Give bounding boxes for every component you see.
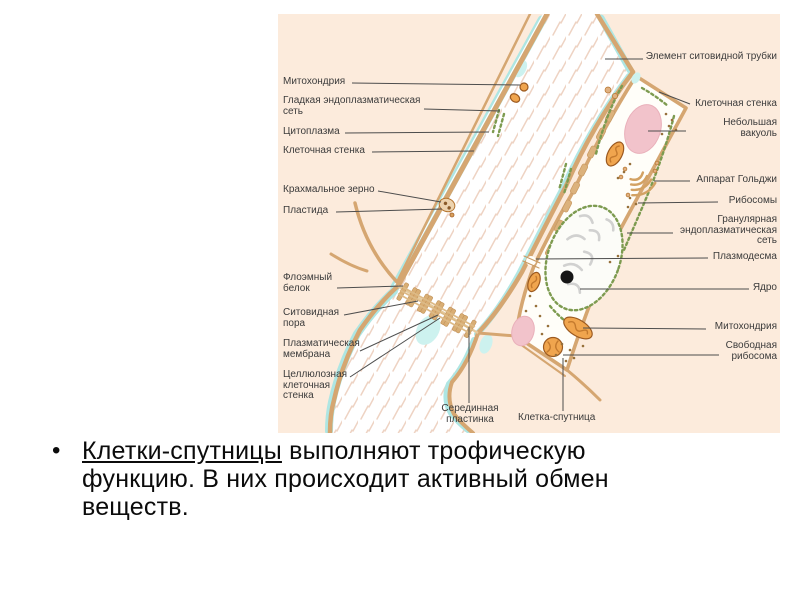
label-sieve-pore: Ситовидная пора [283,308,339,329]
label-phloem-protein: Флоэмный белок [283,273,332,294]
label-small-vacuole: Небольшая вакуоль [723,118,777,139]
label-cytoplasm: Цитоплазма [283,127,340,138]
slide: Митохондрия Гладкая эндоплазматическая с… [0,0,800,600]
mitochondrion-icon [520,83,528,91]
label-starch-grain: Крахмальное зерно [283,185,375,196]
bullet-marker: • [52,437,82,521]
label-mitochondrion-right: Митохондрия [715,322,777,333]
label-nucleus: Ядро [753,283,777,294]
mitochondrion-icon [544,338,563,357]
label-golgi-apparatus: Аппарат Гольджи [696,175,777,186]
label-smooth-er: Гладкая эндоплазматическая сеть [283,96,420,117]
label-sieve-tube-element: Элемент ситовидной трубки [646,52,777,63]
label-granular-er: Гранулярная эндоплазматическая сеть [680,215,777,247]
bullet-line-2: функцию. В них происходит активный обмен [82,465,609,493]
label-free-ribosome: Свободная рибосома [726,341,777,362]
label-plastid: Пластида [283,206,328,217]
label-ribosomes: Рибосомы [729,196,777,207]
nucleolus [561,271,574,284]
wall-branch [331,254,367,271]
label-cellulose-cell-wall: Целлюлозная клеточная стенка [283,370,347,402]
bullet-line-1: Клетки-спутницы выполняют трофическую [82,437,609,465]
bullet-item: • Клетки-спутницы выполняют трофическую … [52,437,752,521]
label-plasmodesma: Плазмодесма [713,252,777,263]
bullet-line-3: веществ. [82,493,609,521]
underlined-term: Клетки-спутницы [82,437,282,465]
label-cell-wall-right: Клеточная стенка [695,99,777,110]
label-cell-wall-left: Клеточная стенка [283,146,365,157]
bullet-line-1-rest: выполняют трофическую [282,437,586,465]
diagram-panel: Митохондрия Гладкая эндоплазматическая с… [278,14,780,433]
label-companion-cell: Клетка-спутница [518,413,595,424]
label-plasma-membrane: Плазматическая мембрана [283,339,360,360]
label-mitochondrion-left: Митохондрия [283,77,345,88]
label-middle-lamella: Серединная пластинка [428,404,512,425]
bullet-text: Клетки-спутницы выполняют трофическую фу… [82,437,609,521]
